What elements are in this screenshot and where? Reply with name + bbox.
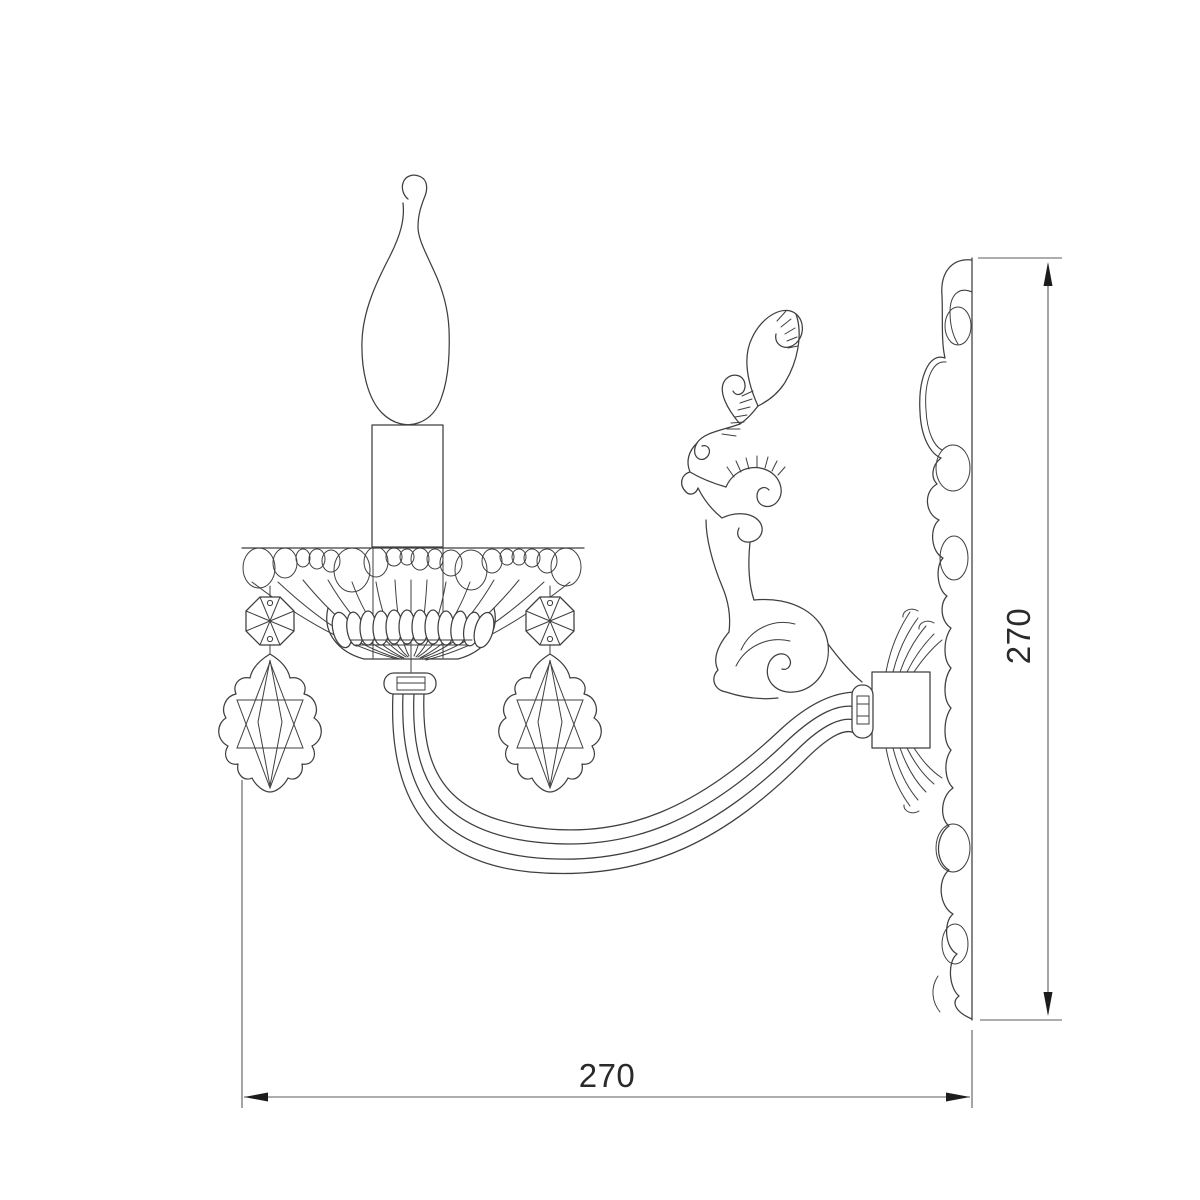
sconce-arm [393, 692, 857, 874]
flame-bulb [362, 175, 449, 424]
scroll-top-curl-outer [758, 314, 799, 406]
fold-line [914, 748, 942, 778]
crystal-pendant-left [219, 654, 322, 792]
fold-line [893, 748, 918, 800]
arrow-up-icon [1044, 262, 1053, 286]
scroll-ornament [682, 310, 862, 698]
candle [362, 175, 449, 547]
fold-cap [903, 609, 918, 617]
wall-mount [852, 672, 930, 748]
scroll-lower-curl [698, 488, 762, 542]
arrow-right-icon [946, 1093, 970, 1102]
scroll-second-curl [722, 375, 758, 424]
wall-plate-bottom-arc [933, 976, 940, 1012]
width-dimension-value: 270 [579, 1057, 636, 1094]
arm-line-outer [393, 693, 857, 874]
wall-plate-lobe-3 [940, 536, 968, 580]
fold-line [900, 748, 926, 792]
scroll-top-curl [747, 310, 803, 406]
bobeche-bowl-beads [329, 610, 497, 650]
bobeche [252, 547, 570, 694]
scroll-body-right [749, 542, 754, 600]
fold-cap [919, 621, 934, 629]
arrow-down-icon [1044, 992, 1053, 1016]
scroll-to-arm [828, 644, 862, 682]
drawing-canvas: 270 270 [0, 0, 1200, 1200]
candle-sleeve [372, 425, 443, 547]
height-dimension: 270 [978, 258, 1062, 1020]
fold-cap [904, 805, 919, 813]
scroll-body-left [706, 520, 730, 632]
pendant-outline [219, 654, 322, 792]
wall-plate-lobe-5 [942, 924, 968, 964]
bead-rim [242, 547, 584, 592]
fold-line [886, 612, 910, 672]
wall-plate-profile [920, 258, 972, 1020]
arm-connector-cap [852, 685, 873, 738]
octagon-button-right [526, 597, 574, 645]
pendant-outline [499, 654, 602, 792]
sconce-line-drawing: 270 270 [0, 0, 1200, 1200]
fold-line [907, 634, 934, 672]
scroll-bridge [690, 472, 726, 487]
fold-line [907, 748, 934, 784]
wall-plate-lobe-4 [936, 824, 970, 872]
arm-line-inner [424, 692, 857, 830]
fold-line [900, 626, 926, 672]
wall-plate-top-lobe [945, 307, 971, 345]
wall-plate-ornate-edge [920, 260, 972, 1019]
fold-line [886, 748, 910, 806]
scroll-hatching [722, 311, 798, 477]
wall-plate-lobe-2 [936, 445, 970, 491]
scroll-left-bumps [682, 443, 698, 494]
octagon-button-left [246, 597, 294, 645]
scroll-mid-spiral [726, 468, 781, 507]
candle-cup-collar [384, 673, 436, 694]
rim-beads [243, 547, 581, 592]
scroll-bottom-spiral [754, 599, 828, 692]
arrow-left-icon [244, 1093, 268, 1102]
fold-line [914, 640, 942, 672]
fold-line [893, 618, 918, 672]
scroll-inner-arc [741, 622, 795, 650]
wall-mount-block [872, 672, 930, 748]
height-dimension-value: 270 [1000, 608, 1037, 665]
crystal-pendant-right [499, 654, 602, 792]
wall-plate-bulge-inner [926, 362, 946, 450]
width-dimension: 270 [242, 780, 972, 1108]
